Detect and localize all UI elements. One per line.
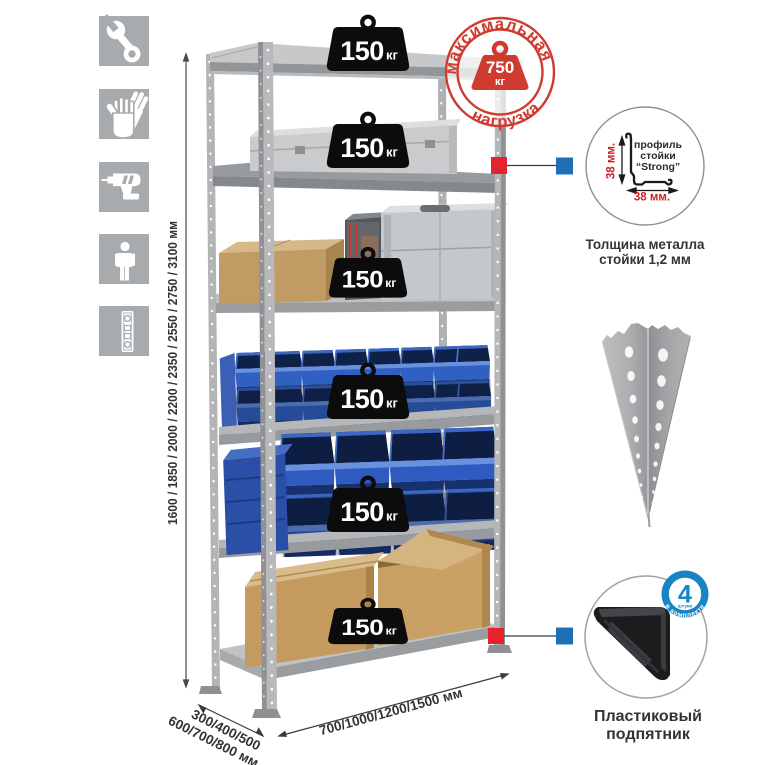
svg-text:кг: кг xyxy=(495,76,506,88)
svg-text:Толщина металла: Толщина металла xyxy=(585,237,705,252)
svg-text:штуки: штуки xyxy=(678,605,693,610)
svg-text:подпятник: подпятник xyxy=(606,726,691,743)
svg-text:стойки 1,2 мм: стойки 1,2 мм xyxy=(599,252,691,267)
svg-text:750: 750 xyxy=(486,58,514,77)
svg-text:“Strong”: “Strong” xyxy=(636,161,680,173)
svg-text:1600 / 1850 / 2000 / 2200 / 23: 1600 / 1850 / 2000 / 2200 / 2350 / 2550 … xyxy=(166,221,180,525)
svg-text:38 мм.: 38 мм. xyxy=(606,143,618,179)
svg-text:38 мм.: 38 мм. xyxy=(634,192,670,204)
svg-text:Пластиковый: Пластиковый xyxy=(594,708,702,725)
